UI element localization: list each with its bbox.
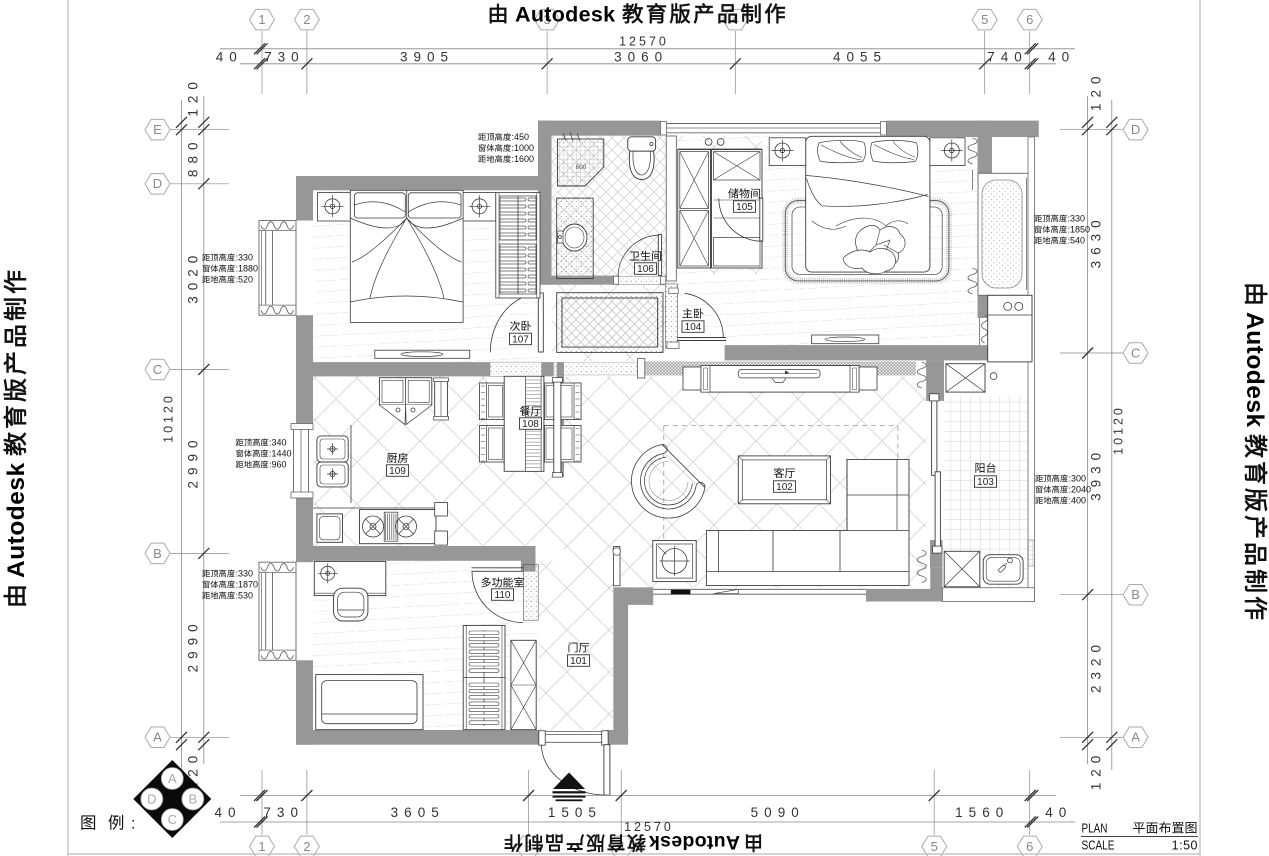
svg-text:Autodesk: Autodesk: [3, 462, 30, 578]
svg-text::1440: :1440: [269, 449, 292, 459]
svg-text:A: A: [168, 771, 177, 786]
svg-text::2040: :2040: [1069, 485, 1092, 495]
svg-text:D: D: [147, 792, 156, 807]
svg-text::330: :330: [1068, 214, 1086, 224]
svg-text::1870: :1870: [236, 580, 259, 590]
svg-text:C: C: [1131, 345, 1140, 360]
svg-text:120: 120: [1089, 750, 1104, 791]
svg-text:105: 105: [736, 202, 753, 213]
svg-text:B: B: [188, 792, 197, 807]
svg-text::450: :450: [512, 132, 530, 142]
svg-text:10120: 10120: [161, 393, 175, 443]
svg-text:B: B: [1131, 587, 1140, 602]
svg-text::330: :330: [236, 253, 254, 263]
svg-text:104: 104: [685, 322, 702, 333]
svg-text:12570: 12570: [619, 35, 669, 49]
svg-text:102: 102: [776, 482, 793, 493]
svg-text::1850: :1850: [1068, 225, 1091, 235]
svg-text:40: 40: [216, 50, 243, 65]
svg-text:5: 5: [981, 12, 988, 27]
svg-text:120: 120: [1089, 71, 1104, 112]
svg-text:3020: 3020: [186, 250, 201, 304]
svg-text:D: D: [1131, 122, 1140, 137]
svg-text:2990: 2990: [186, 618, 201, 672]
svg-text:D: D: [153, 176, 162, 191]
svg-text:730: 730: [263, 805, 304, 820]
svg-text:40: 40: [1045, 805, 1072, 820]
svg-text:3630: 3630: [1089, 214, 1104, 268]
svg-text:B: B: [153, 546, 162, 561]
svg-text::960: :960: [269, 460, 287, 470]
svg-text:1: 1: [258, 839, 265, 854]
svg-text::340: :340: [269, 438, 287, 448]
svg-text:730: 730: [264, 50, 305, 65]
svg-text::: :: [131, 816, 135, 833]
svg-text:4055: 4055: [833, 50, 887, 65]
svg-text:SCALE: SCALE: [1082, 839, 1115, 853]
svg-text::1000: :1000: [512, 143, 535, 153]
svg-text:10120: 10120: [1112, 405, 1126, 455]
svg-text:Autodesk: Autodesk: [515, 3, 615, 27]
svg-text:5090: 5090: [751, 805, 805, 820]
svg-text:101: 101: [570, 656, 587, 667]
svg-text:3605: 3605: [391, 805, 445, 820]
svg-text:C: C: [153, 362, 162, 377]
svg-text:6: 6: [1026, 12, 1033, 27]
svg-text:3060: 3060: [614, 50, 668, 65]
svg-text::530: :530: [236, 591, 254, 601]
svg-text::520: :520: [236, 275, 254, 285]
svg-text:A: A: [1131, 730, 1140, 745]
svg-text:3905: 3905: [400, 50, 454, 65]
svg-text:1: 1: [258, 12, 265, 27]
svg-text:40: 40: [1048, 50, 1075, 65]
svg-text:C: C: [168, 812, 177, 827]
svg-text:107: 107: [512, 335, 529, 346]
svg-text::300: :300: [1069, 474, 1087, 484]
svg-text:5: 5: [931, 839, 938, 854]
svg-text:106: 106: [637, 264, 654, 275]
svg-text:740: 740: [987, 50, 1028, 65]
svg-text:Autodesk: Autodesk: [649, 831, 740, 853]
svg-text:1:50: 1:50: [1172, 839, 1198, 853]
svg-text:880: 880: [186, 137, 201, 178]
svg-text:40: 40: [214, 805, 241, 820]
svg-text:2320: 2320: [1089, 639, 1104, 693]
svg-text:2: 2: [303, 839, 310, 854]
svg-text::540: :540: [1068, 236, 1086, 246]
svg-text:110: 110: [495, 590, 511, 601]
svg-text:2: 2: [303, 12, 310, 27]
svg-text:1560: 1560: [955, 805, 1009, 820]
svg-text:103: 103: [977, 477, 994, 488]
svg-text:120: 120: [186, 76, 201, 117]
svg-text:2990: 2990: [186, 434, 201, 488]
svg-text:A: A: [153, 730, 162, 745]
svg-text:E: E: [153, 122, 162, 137]
svg-text:1505: 1505: [548, 805, 602, 820]
svg-text:6: 6: [1026, 839, 1033, 854]
svg-text::330: :330: [236, 569, 254, 579]
svg-text:Autodesk: Autodesk: [1241, 312, 1268, 428]
svg-text::1880: :1880: [236, 264, 259, 274]
svg-text:600: 600: [576, 164, 587, 171]
svg-text::1600: :1600: [512, 154, 535, 164]
svg-text:PLAN: PLAN: [1082, 822, 1108, 836]
svg-text::400: :400: [1069, 496, 1087, 506]
svg-text:108: 108: [522, 419, 539, 430]
svg-text:109: 109: [389, 466, 406, 477]
